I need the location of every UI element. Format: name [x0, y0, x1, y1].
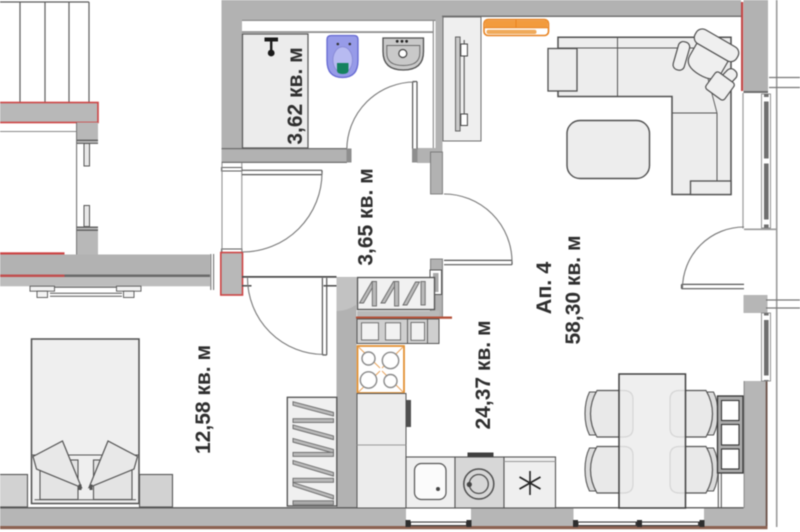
svg-text:Ап. 4: Ап. 4 [532, 262, 556, 314]
svg-text:24,37 кв. м: 24,37 кв. м [472, 320, 495, 429]
svg-text:3,62 кв. м: 3,62 кв. м [284, 47, 307, 144]
svg-text:3,65 кв. м: 3,65 кв. м [355, 168, 378, 265]
svg-text:12,58 кв. м: 12,58 кв. м [192, 345, 215, 454]
svg-text:58,30 кв. м: 58,30 кв. м [562, 235, 585, 344]
